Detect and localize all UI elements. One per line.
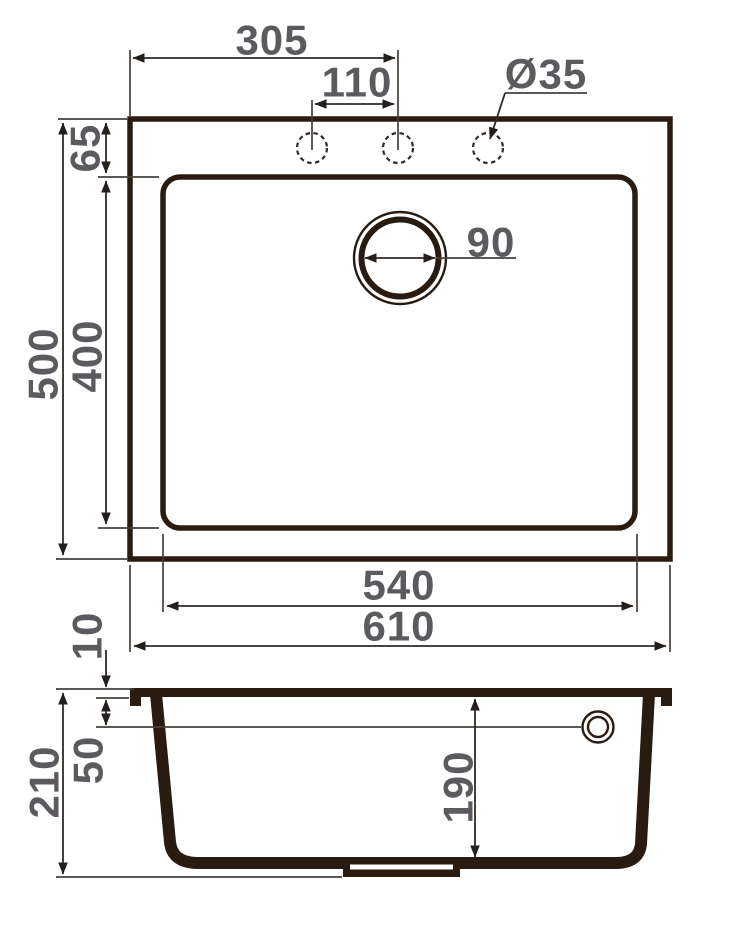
background xyxy=(0,0,737,933)
dim-label-500: 500 xyxy=(20,327,67,400)
dim-label-610: 610 xyxy=(362,603,435,650)
dim-label-110: 110 xyxy=(322,59,393,106)
dim-label-50: 50 xyxy=(65,736,112,785)
dim-label-65: 65 xyxy=(62,124,109,173)
dim-label-540: 540 xyxy=(362,562,435,609)
dim-label-400: 400 xyxy=(64,319,111,392)
dim-label-90: 90 xyxy=(467,219,516,266)
drawing-svg: 305 110 Ø35 65 90 400 500 540 610 10 50 xyxy=(0,0,737,933)
dim-label-210: 210 xyxy=(21,745,68,818)
dim-label-10: 10 xyxy=(64,612,111,661)
dim-label-305: 305 xyxy=(235,17,308,64)
dim-label-tap-diameter: Ø35 xyxy=(505,51,587,98)
drain-boss-slot xyxy=(350,865,453,870)
dim-label-190: 190 xyxy=(435,750,482,823)
sink-technical-drawing: 305 110 Ø35 65 90 400 500 540 610 10 50 xyxy=(0,0,737,933)
